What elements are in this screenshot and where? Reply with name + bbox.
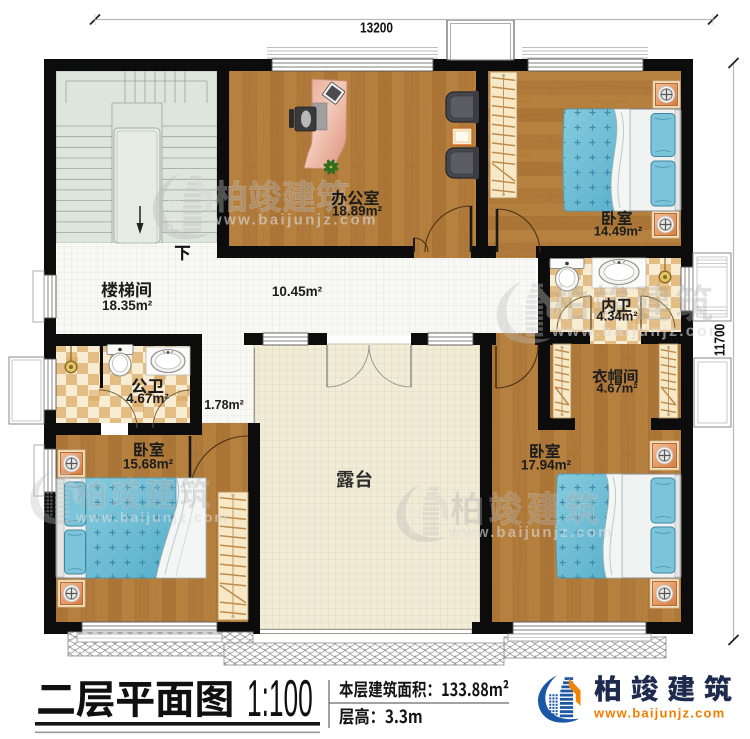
svg-text:18.89m²: 18.89m² [332, 204, 383, 219]
svg-text:17.94m²: 17.94m² [521, 458, 572, 473]
svg-text:11700: 11700 [711, 324, 727, 356]
svg-text:www.baijunjz.com: www.baijunjz.com [593, 706, 725, 721]
svg-text:14.49m²: 14.49m² [594, 224, 643, 239]
svg-text:4.67m²: 4.67m² [126, 391, 169, 406]
svg-text:4.34m²: 4.34m² [596, 309, 638, 324]
svg-text:www.baijunjz.com: www.baijunjz.com [75, 509, 229, 525]
svg-text:13200: 13200 [360, 19, 393, 35]
svg-text:www.baijunjz.com: www.baijunjz.com [448, 524, 614, 541]
svg-text:4.67m²: 4.67m² [596, 381, 638, 396]
svg-text:18.35m²: 18.35m² [102, 298, 153, 313]
svg-text:15.68m²: 15.68m² [123, 457, 174, 472]
svg-text:www.baijunjz.com: www.baijunjz.com [551, 323, 725, 340]
svg-text:1:100: 1:100 [247, 669, 313, 727]
svg-text:10.45m²: 10.45m² [272, 284, 323, 299]
svg-text:1.78m²: 1.78m² [204, 398, 244, 412]
